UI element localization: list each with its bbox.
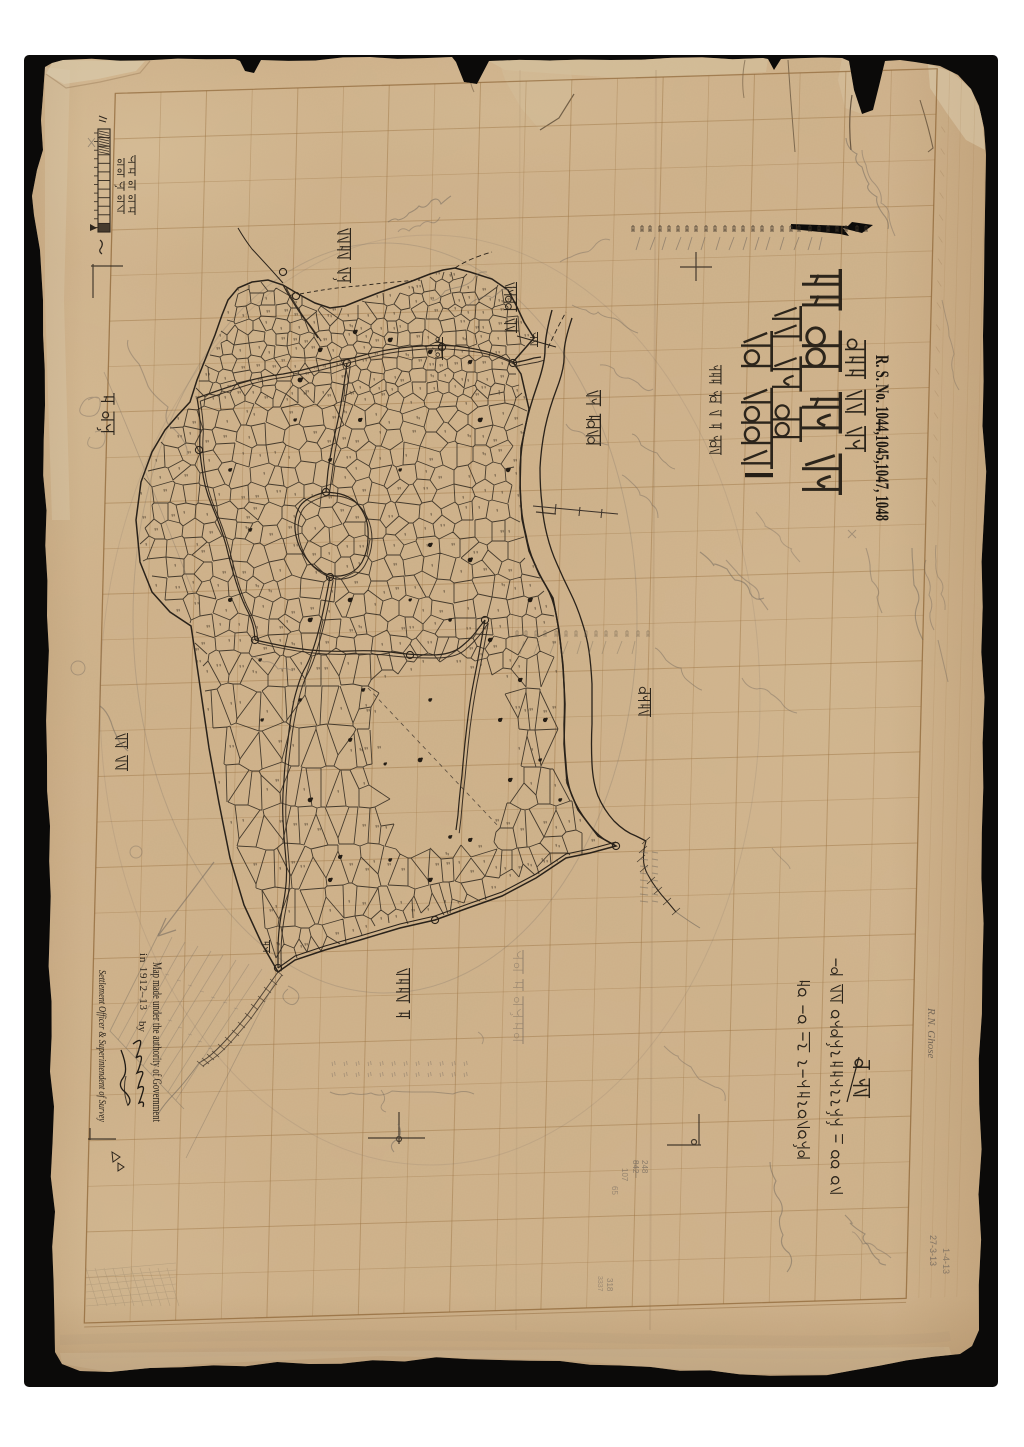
svg-text:R. S. No. 1044,1045,1047, 1048: R. S. No. 1044,1045,1047, 1048 bbox=[871, 355, 892, 521]
svg-text:65: 65 bbox=[610, 1186, 619, 1195]
svg-text:27-3-13: 27-3-13 bbox=[928, 1235, 938, 1266]
svg-text:318: 318 bbox=[605, 1278, 614, 1292]
svg-text:107: 107 bbox=[620, 1168, 629, 1182]
svg-text:R.N. Ghose: R.N. Ghose bbox=[925, 1007, 937, 1059]
svg-text:248: 248 bbox=[640, 1160, 649, 1174]
svg-text:Settlement Officer & Superinte: Settlement Officer & Superintendent of S… bbox=[96, 970, 107, 1122]
svg-text:842: 842 bbox=[631, 1160, 640, 1174]
svg-text:1-4-13: 1-4-13 bbox=[941, 1248, 951, 1274]
svg-text:3337: 3337 bbox=[596, 1276, 603, 1292]
